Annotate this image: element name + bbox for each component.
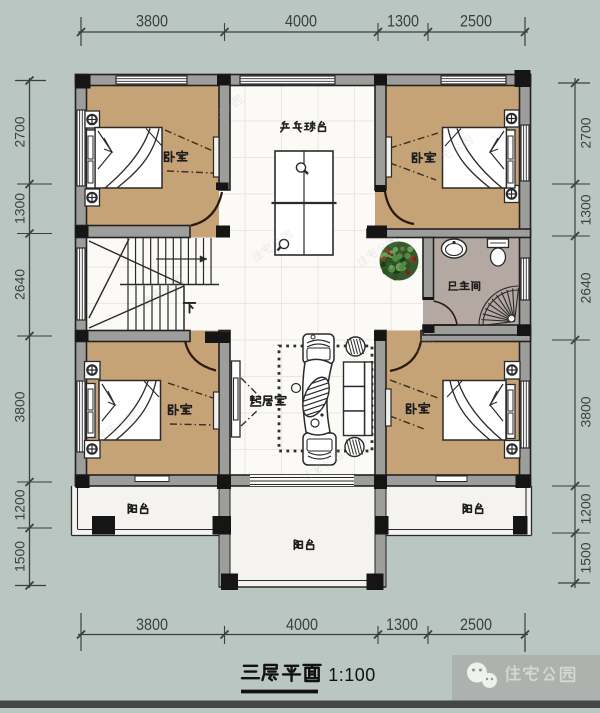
- svg-text:2500: 2500: [460, 12, 492, 31]
- svg-text:2640: 2640: [578, 272, 594, 303]
- svg-text:3800: 3800: [136, 12, 168, 31]
- svg-text:4000: 4000: [286, 615, 318, 634]
- svg-text:1300: 1300: [387, 12, 419, 31]
- svg-text:1500: 1500: [578, 542, 594, 573]
- svg-text:1500: 1500: [12, 541, 28, 572]
- svg-text:3800: 3800: [12, 391, 28, 422]
- svg-text:2700: 2700: [12, 116, 28, 147]
- svg-text:1200: 1200: [12, 489, 28, 520]
- svg-text:3800: 3800: [578, 396, 594, 427]
- svg-text:1300: 1300: [386, 615, 418, 634]
- svg-text:2640: 2640: [12, 269, 28, 300]
- svg-text:1300: 1300: [578, 194, 594, 225]
- svg-text:2500: 2500: [460, 615, 492, 634]
- svg-text:1200: 1200: [578, 493, 594, 524]
- svg-text:2700: 2700: [578, 117, 594, 148]
- svg-text:1:100: 1:100: [328, 665, 376, 685]
- svg-text:1300: 1300: [12, 193, 28, 224]
- svg-text:4000: 4000: [285, 12, 317, 31]
- svg-text:3800: 3800: [136, 615, 168, 634]
